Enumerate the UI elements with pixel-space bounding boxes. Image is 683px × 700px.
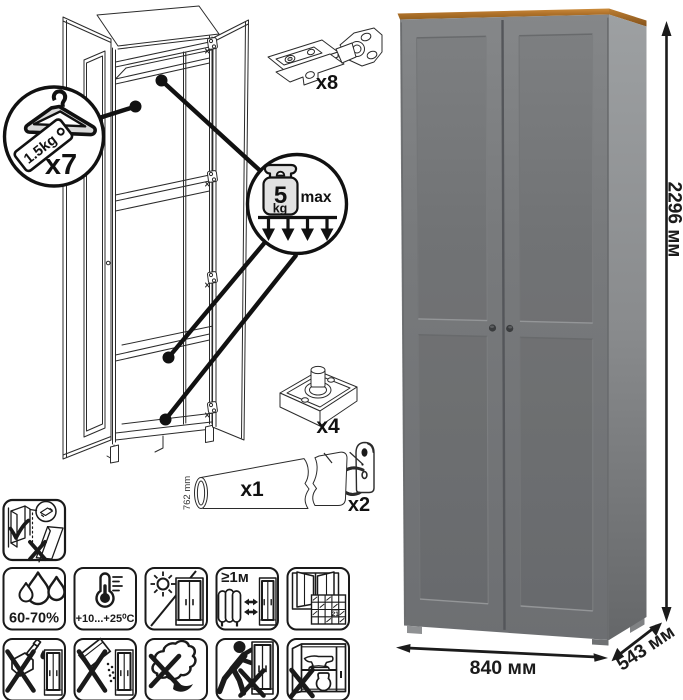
svg-text:60-70%: 60-70% xyxy=(9,611,59,627)
svg-text:x2: x2 xyxy=(348,494,370,516)
svg-text:max: max xyxy=(300,189,331,206)
svg-text:x4: x4 xyxy=(316,415,340,438)
svg-text:+10...+25⁰C: +10...+25⁰C xyxy=(76,613,135,625)
svg-text:x8: x8 xyxy=(316,72,338,94)
svg-text:762 mm: 762 mm xyxy=(182,476,193,510)
svg-text:21: 21 xyxy=(332,611,340,618)
svg-text:x1: x1 xyxy=(240,478,264,501)
svg-text:840 мм: 840 мм xyxy=(470,657,537,679)
svg-text:2296 мм: 2296 мм xyxy=(664,182,683,258)
svg-text:≥1м: ≥1м xyxy=(221,569,249,586)
svg-text:kg: kg xyxy=(273,202,288,216)
svg-text:x7: x7 xyxy=(45,149,77,181)
